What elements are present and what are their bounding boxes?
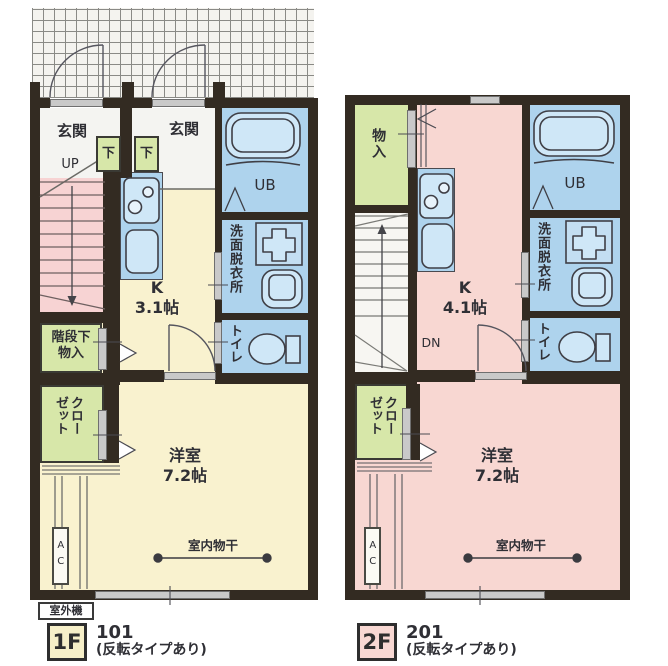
label-toilet-1f: トイレ bbox=[226, 324, 241, 372]
window-top-2f bbox=[470, 96, 500, 104]
label-step-down: 下 bbox=[102, 146, 115, 162]
label-stairs-dn: DN bbox=[415, 335, 447, 351]
floor1-badge: 1F bbox=[47, 623, 87, 661]
entrance-porch-tiles bbox=[32, 8, 314, 98]
wall bbox=[522, 371, 620, 384]
washroom-sliding-door-1f bbox=[214, 252, 222, 300]
wall bbox=[345, 205, 417, 213]
wall bbox=[213, 82, 225, 98]
wall bbox=[417, 370, 475, 382]
wall bbox=[530, 311, 620, 318]
label-closet-2f: クロー ゼット bbox=[366, 396, 396, 454]
room-unit-bath-1f bbox=[222, 108, 308, 212]
label-ac: AC bbox=[367, 540, 379, 572]
stairs-1f bbox=[40, 178, 105, 312]
label-unit-bath-1f: UB bbox=[236, 176, 294, 195]
label-toilet-2f: トイレ bbox=[534, 322, 549, 370]
wall bbox=[40, 312, 120, 323]
storage-door-2f bbox=[407, 110, 416, 168]
kitchen-bedroom-door-sill-1f bbox=[164, 372, 216, 380]
kitchen-counter-2f bbox=[417, 168, 455, 272]
wall bbox=[120, 108, 132, 178]
label-genkan-left: 玄関 bbox=[48, 122, 96, 141]
label-indoor-drying-1f: 室内物干 bbox=[163, 538, 263, 554]
label-ac: AC bbox=[55, 540, 67, 572]
washroom-sliding-door-2f bbox=[521, 252, 529, 298]
step-box: 下 bbox=[96, 136, 121, 172]
toilet-sliding-door-1f bbox=[214, 322, 222, 364]
ac-unit-box: AC bbox=[364, 527, 381, 585]
floor2-unit-note: (反転タイプあり) bbox=[406, 642, 566, 660]
label-step-down: 下 bbox=[140, 146, 153, 162]
step-box: 下 bbox=[134, 136, 159, 172]
label-closet-1f: クロー ゼット bbox=[52, 396, 82, 454]
bedroom-window-1f bbox=[95, 591, 230, 599]
wall bbox=[308, 98, 318, 600]
label-bedroom-2f: 洋室 7.2帖 bbox=[447, 446, 547, 486]
bedroom-window-2f bbox=[425, 591, 545, 599]
wall bbox=[30, 98, 40, 600]
wall bbox=[222, 212, 308, 220]
entry-door-sill bbox=[152, 99, 205, 107]
label-understair-storage: 階段下 物入 bbox=[40, 330, 102, 361]
toilet-sliding-door-2f bbox=[521, 320, 529, 362]
label-kitchen-1f: K 3.1帖 bbox=[116, 278, 198, 318]
closet-door-2f bbox=[402, 408, 411, 460]
floorplan-page: 玄関 玄関 下 下 UP K 3.1帖 UB 洗面脱衣所 トイレ 階段下 物入 … bbox=[0, 0, 668, 666]
label-genkan-right: 玄関 bbox=[160, 120, 208, 139]
wall bbox=[215, 373, 308, 384]
room-genkan-right-1f-lower bbox=[159, 172, 215, 189]
closet-door-1f bbox=[98, 410, 107, 460]
wall bbox=[345, 372, 417, 384]
label-storage-2f: 物入 bbox=[370, 128, 386, 184]
wall bbox=[105, 370, 164, 382]
stairs-2f bbox=[355, 213, 408, 372]
label-washroom-2f: 洗面脱衣所 bbox=[534, 222, 549, 310]
label-outdoor-unit: 室外機 bbox=[50, 604, 83, 618]
ac-unit-box: AC bbox=[52, 527, 69, 585]
label-kitchen-2f: K 4.1帖 bbox=[424, 278, 506, 318]
kitchen-bedroom-door-sill-2f bbox=[475, 372, 527, 380]
floor1-unit-note: (反転タイプあり) bbox=[96, 642, 256, 660]
wall bbox=[122, 82, 134, 98]
wall bbox=[205, 98, 318, 108]
wall bbox=[620, 95, 630, 600]
label-indoor-drying-2f: 室内物干 bbox=[471, 538, 571, 554]
label-stairs-up: UP bbox=[48, 157, 92, 173]
wall bbox=[345, 95, 355, 600]
entry-door-sill bbox=[50, 99, 103, 107]
outdoor-unit-box: 室外機 bbox=[38, 602, 94, 620]
wall bbox=[222, 313, 308, 320]
label-washroom-1f: 洗面脱衣所 bbox=[226, 224, 241, 312]
wall bbox=[530, 210, 620, 218]
wall bbox=[30, 82, 40, 98]
floor2-badge: 2F bbox=[357, 623, 397, 661]
label-bedroom-1f: 洋室 7.2帖 bbox=[135, 446, 235, 486]
kitchen-counter-1f bbox=[120, 172, 163, 280]
label-unit-bath-2f: UB bbox=[546, 174, 604, 193]
room-unit-bath-2f bbox=[530, 105, 620, 210]
wall bbox=[103, 98, 152, 108]
